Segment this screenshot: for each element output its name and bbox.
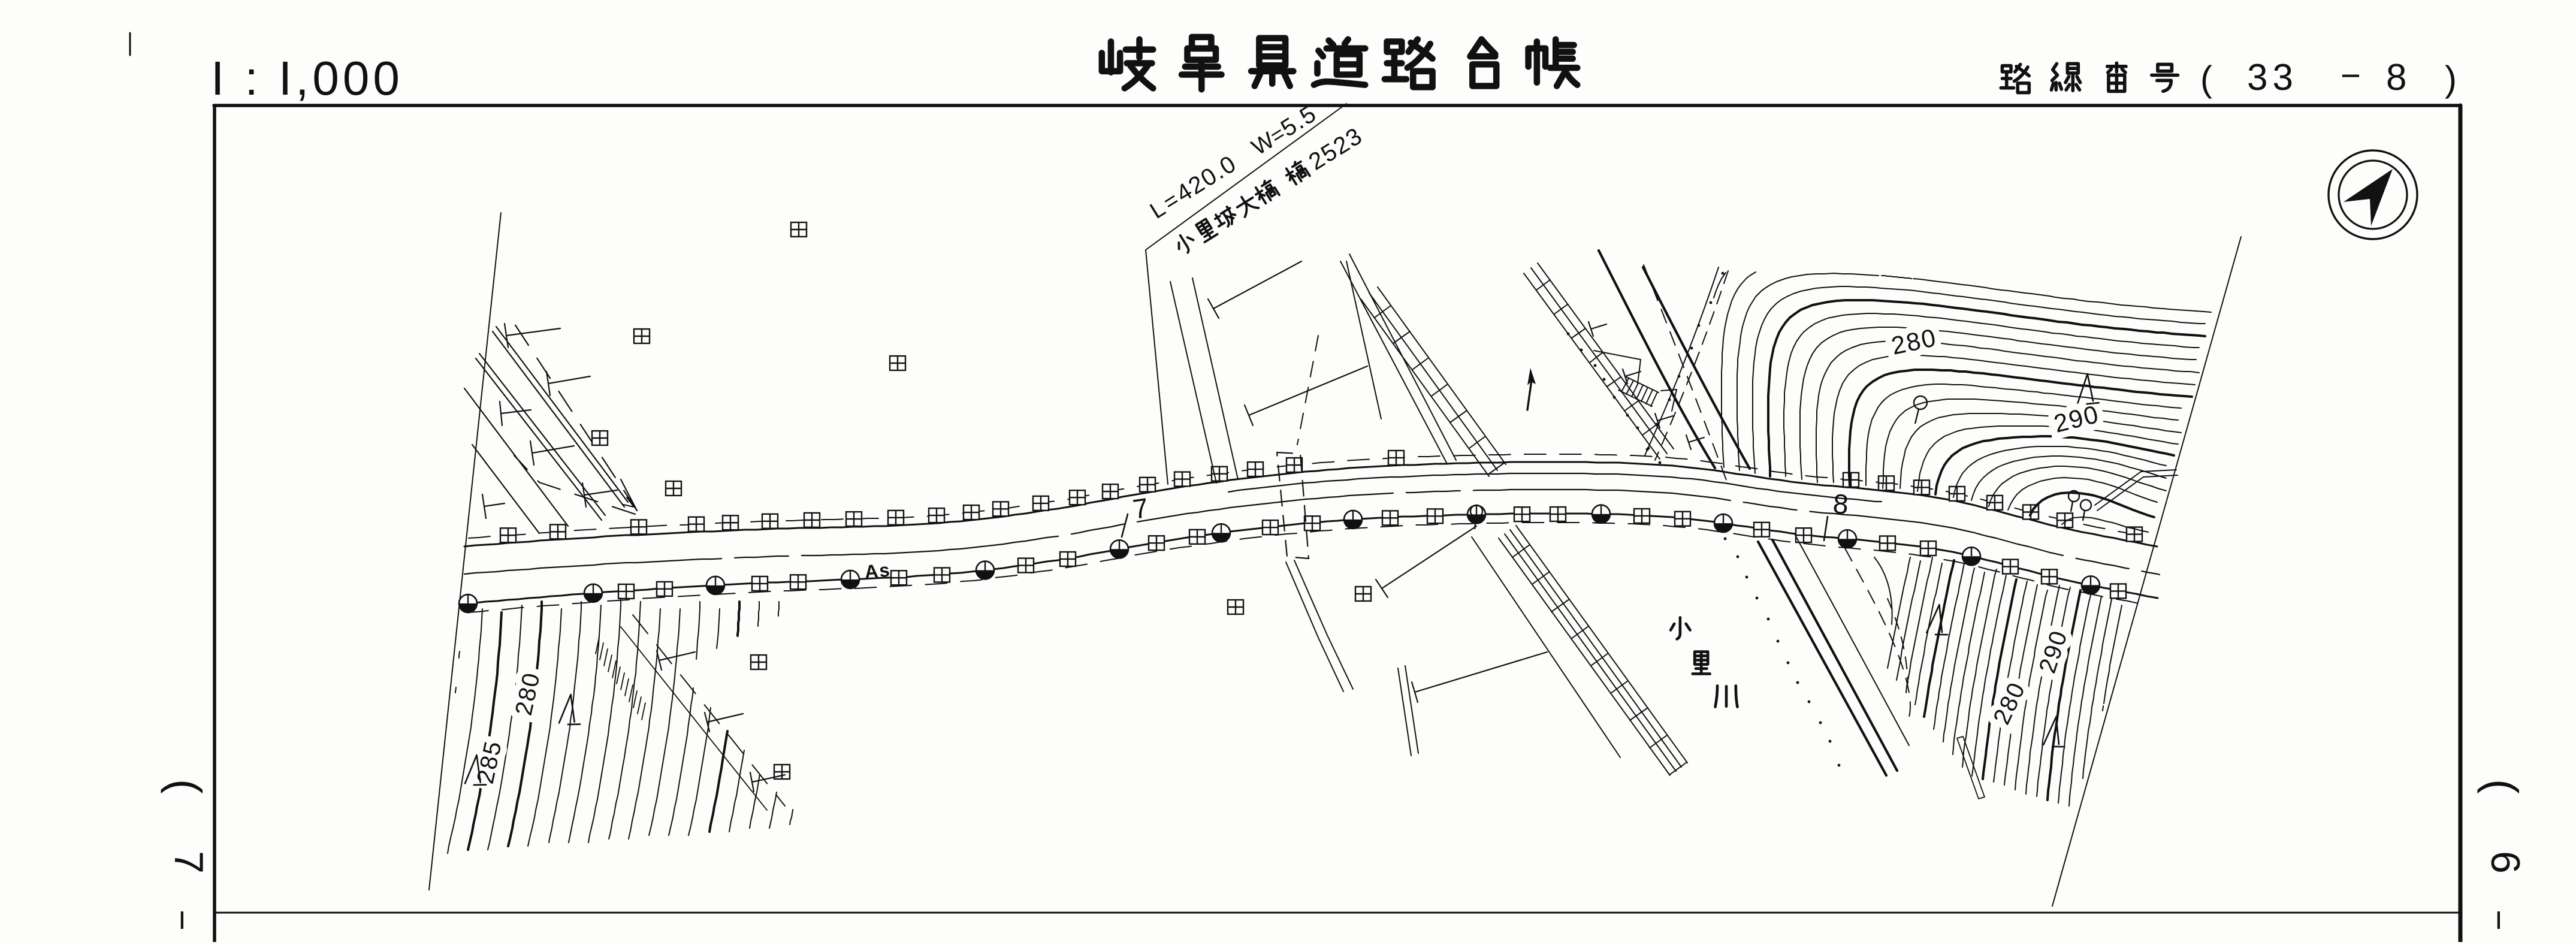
- svg-text:As: As: [864, 559, 892, 582]
- svg-text:6: 6: [2483, 851, 2528, 874]
- svg-text:): ): [2445, 59, 2457, 99]
- svg-text:(: (: [161, 779, 210, 794]
- svg-text:7: 7: [166, 851, 212, 874]
- svg-text:8: 8: [2386, 57, 2406, 98]
- svg-text:8: 8: [1832, 488, 1849, 520]
- svg-text:(: (: [2200, 59, 2212, 99]
- svg-text:I : I,000: I : I,000: [211, 52, 403, 105]
- svg-text:−: −: [2479, 910, 2519, 931]
- svg-text:−: −: [2341, 56, 2361, 95]
- svg-text:−: −: [162, 910, 203, 931]
- svg-text:(: (: [2477, 779, 2527, 794]
- svg-text:33: 33: [2247, 57, 2298, 98]
